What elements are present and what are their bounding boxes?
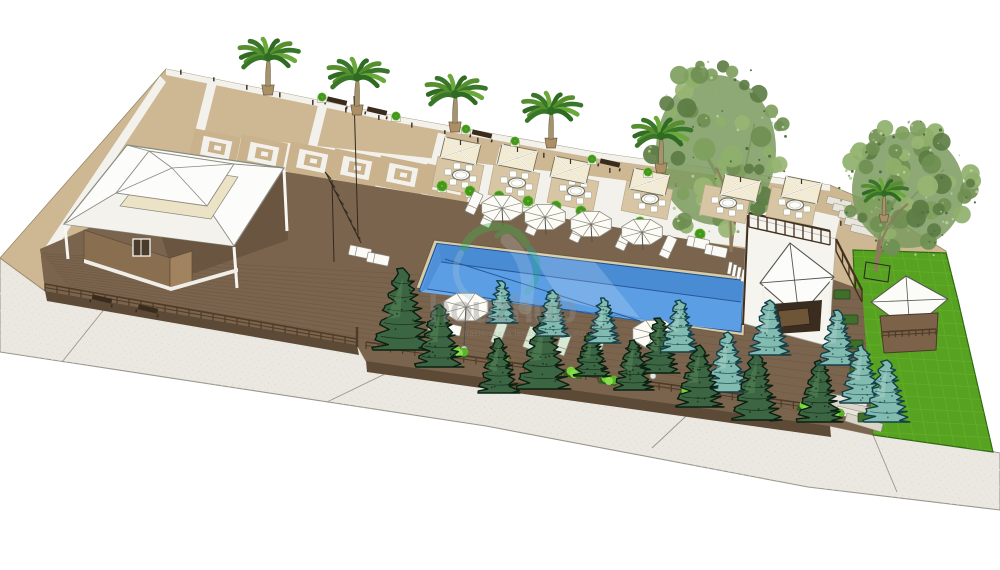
svg-text:houzhub: houzhub	[428, 289, 576, 331]
svg-text:masterskaya landshaftnogo diza: masterskaya landshaftnogo dizayna	[462, 329, 603, 338]
